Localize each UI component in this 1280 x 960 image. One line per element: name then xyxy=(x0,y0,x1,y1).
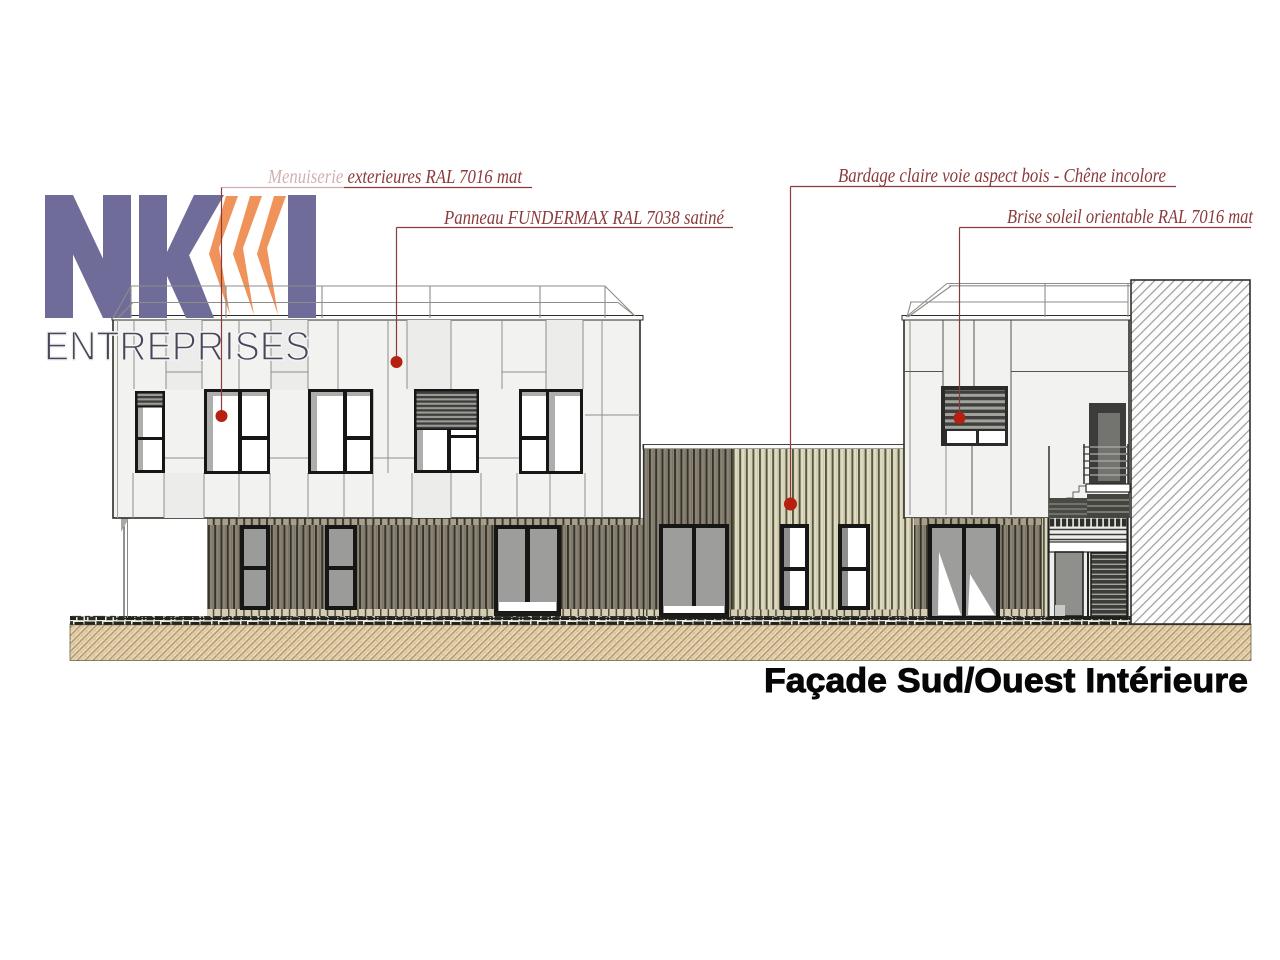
svg-text:ENTREPRISES: ENTREPRISES xyxy=(44,323,310,369)
svg-text:Brise soleil orientable RAL 70: Brise soleil orientable RAL 7016 mat xyxy=(1007,206,1253,228)
svg-text:Panneau FUNDERMAX RAL 7038 sat: Panneau FUNDERMAX RAL 7038 satiné xyxy=(443,207,725,229)
svg-text:Bardage claire voie aspect boi: Bardage claire voie aspect bois - Chêne … xyxy=(838,165,1166,187)
svg-text:Façade Sud/Ouest Intérieure: Façade Sud/Ouest Intérieure xyxy=(764,662,1248,700)
